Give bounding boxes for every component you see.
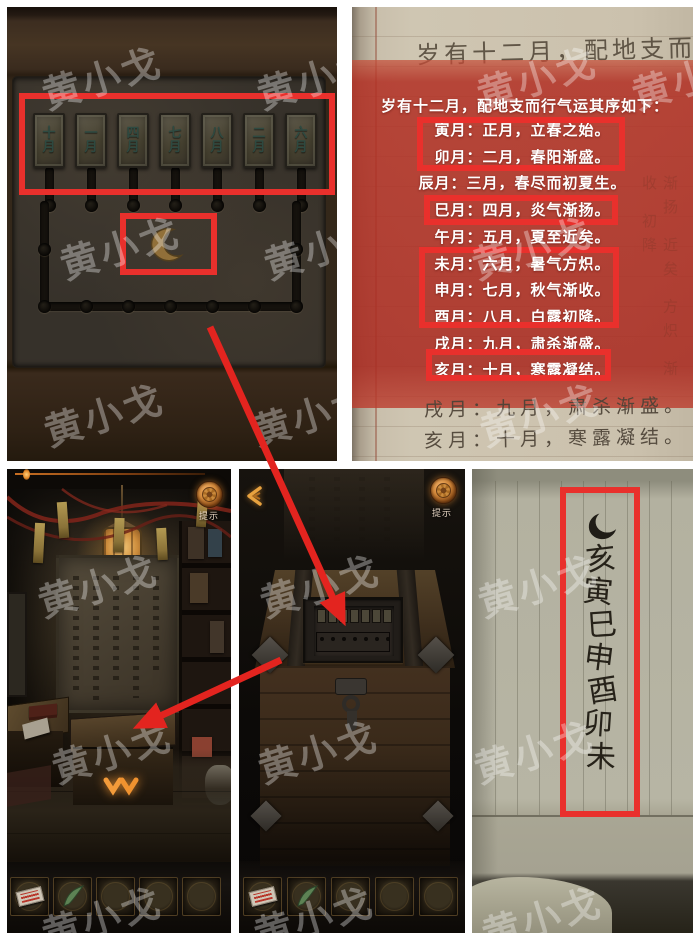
peg-hole (164, 300, 177, 313)
clasp-hook (347, 711, 357, 731)
carved-text-column (384, 477, 390, 541)
puzzle-recess (314, 606, 394, 656)
peg-hole (206, 300, 219, 313)
slot-ring (380, 882, 409, 911)
peg-hole (38, 243, 51, 256)
highlight-box-si (424, 195, 618, 225)
book-spine (210, 621, 224, 653)
mini-month-tile (339, 609, 348, 623)
highlight-box-yin-mao (417, 117, 625, 171)
carved-text-column (73, 576, 79, 694)
peg-hole (169, 199, 182, 212)
inventory-slot[interactable] (287, 877, 326, 916)
wall-scroll (7, 592, 27, 697)
inventory-slot[interactable] (53, 877, 92, 916)
peg-hole (211, 199, 224, 212)
mini-month-tile (361, 609, 370, 623)
panel-room-scene: 提示 黄小戈黄小戈黄小戈 (7, 469, 231, 933)
hint-button[interactable] (430, 477, 457, 504)
panel-book-page: 岁有十二月，配地支而行气 渐扬 近矣 方炽 渐收 初降 岁有十二月，配地支而行气… (352, 7, 693, 461)
back-button[interactable] (244, 485, 266, 507)
inventory-slot[interactable] (419, 877, 458, 916)
flame-icon (23, 469, 30, 480)
peg-hole (353, 637, 357, 641)
handwritten-line: 戌月：九月，肃杀渐盛。 (424, 391, 688, 423)
track-groove-left (40, 201, 49, 311)
carved-text-column (93, 576, 99, 702)
watermark: 黄小戈 (37, 368, 171, 457)
inventory-slot[interactable] (10, 877, 49, 916)
mini-month-tile (372, 609, 381, 623)
peg-hole (386, 637, 390, 641)
mini-month-tile (328, 609, 337, 623)
carved-text-column (133, 576, 139, 698)
carved-text-column (334, 477, 340, 541)
month-line: 辰月：三月，春尽而初夏生。 (352, 170, 693, 197)
overlay-title: 岁有十二月，配地支而行气运其序如下： (381, 95, 669, 116)
peg-hole (342, 637, 346, 641)
watermark: 黄小戈 (245, 368, 337, 457)
peg-hole (85, 199, 98, 212)
peg-hole (364, 637, 368, 641)
inventory-bar (7, 861, 231, 933)
carved-text-column (359, 477, 365, 541)
mini-month-tile (383, 609, 392, 623)
peg-hole (80, 300, 93, 313)
peg-hole (331, 637, 335, 641)
item-jade-ornament (293, 882, 321, 910)
highlight-box-hai (426, 349, 611, 381)
slot-ring (101, 882, 130, 911)
mini-month-tile (350, 609, 359, 623)
track-groove-right (292, 201, 301, 311)
slot-ring (187, 882, 216, 911)
carved-text-column (113, 576, 119, 686)
glow-marker-icon (102, 775, 140, 799)
hint-label: 提示 (432, 506, 452, 519)
inventory-slot[interactable] (243, 877, 282, 916)
peg-groove (316, 632, 390, 652)
handwritten-line: 亥月：十月，寒露凝结。 (424, 422, 688, 454)
chest-puzzle-plate[interactable] (303, 597, 403, 663)
hint-label: 提示 (199, 509, 219, 522)
hint-button[interactable] (196, 481, 223, 508)
beam-light (15, 473, 205, 475)
item-jade-ornament (59, 882, 87, 910)
porcelain-vase (472, 877, 612, 933)
peg-hole (375, 637, 379, 641)
floor-joint (7, 833, 231, 834)
item-pattern (20, 890, 40, 903)
mini-month-tile (317, 609, 326, 623)
carved-text-column (153, 576, 159, 676)
panel-note-paper: 亥寅巳申酉卯未 黄小戈黄小戈黄小戈 (472, 469, 693, 933)
peg-hole (122, 300, 135, 313)
panel-tile-puzzle: 十月一月四月七月八月二月六月黄小戈黄小戈黄小戈黄小戈黄小戈黄小戈 (7, 7, 337, 461)
peg-hole (248, 300, 261, 313)
inventory-slot[interactable] (139, 877, 178, 916)
highlight-box-wei-shen-you (419, 247, 619, 328)
highlight-box-note (560, 487, 640, 817)
peg-hole (127, 199, 140, 212)
panel-chest-scene: 提示 黄小戈黄小戈黄小戈 (239, 469, 465, 933)
item-pattern (253, 890, 273, 903)
walkthrough-collage: 十月一月四月七月八月二月六月黄小戈黄小戈黄小戈黄小戈黄小戈黄小戈 岁有十二月，配… (0, 0, 700, 933)
peg-hole (290, 243, 303, 256)
pot (205, 765, 231, 805)
talisman-strip (33, 523, 45, 563)
coin-icon (202, 487, 217, 502)
carved-text-column (309, 477, 315, 541)
slot-ring (144, 882, 173, 911)
peg-hole (320, 637, 324, 641)
peg-hole (290, 300, 303, 313)
talisman-strip (113, 518, 124, 552)
slot-ring (424, 882, 453, 911)
inventory-slot[interactable] (96, 877, 135, 916)
inventory-slot[interactable] (375, 877, 414, 916)
inventory-slot[interactable] (182, 877, 221, 916)
peg-hole (253, 199, 266, 212)
talisman-strip (156, 528, 168, 560)
coin-icon (436, 483, 451, 498)
peg-hole (38, 300, 51, 313)
chest-clasp[interactable] (335, 678, 367, 695)
inventory-bar (239, 861, 465, 933)
highlight-box-moon (120, 213, 217, 275)
inventory-slot[interactable] (331, 877, 370, 916)
slot-ring (336, 882, 365, 911)
highlight-box-tiles (19, 93, 335, 195)
carved-wall (284, 469, 424, 561)
